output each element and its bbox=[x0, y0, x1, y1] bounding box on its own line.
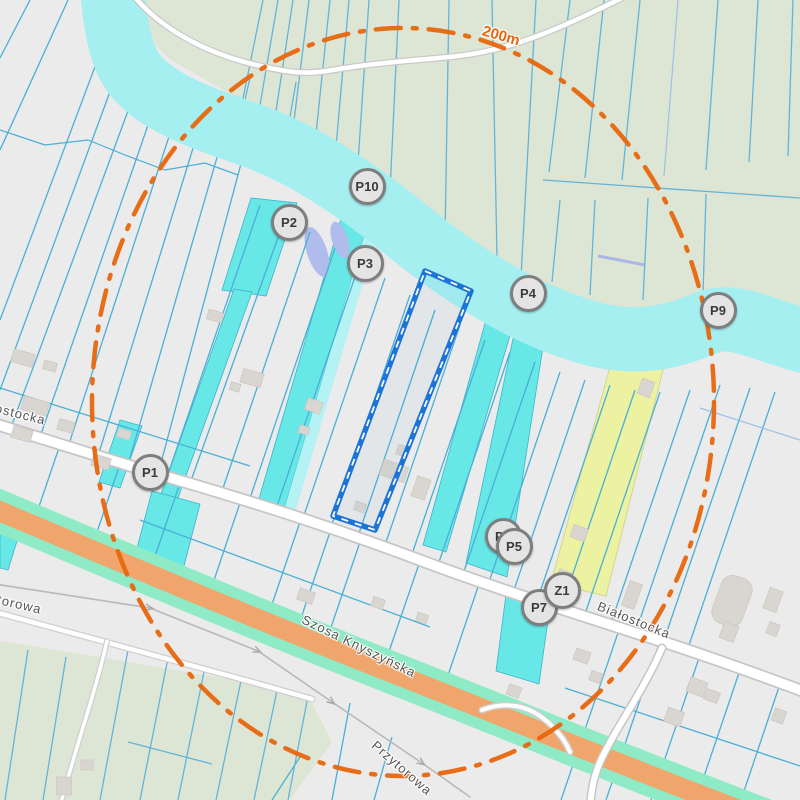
map-canvas[interactable]: BiałostockaSzosa KnyszyńskaBiałostockaPr… bbox=[0, 0, 800, 800]
map-marker-P9[interactable]: P9 bbox=[700, 292, 737, 329]
base-map bbox=[0, 0, 800, 800]
map-marker-P10[interactable]: P10 bbox=[349, 168, 386, 205]
map-marker-P5[interactable]: P5 bbox=[496, 528, 533, 565]
map-marker-P1[interactable]: P1 bbox=[132, 454, 169, 491]
map-marker-Z1[interactable]: Z1 bbox=[544, 572, 581, 609]
map-marker-P4[interactable]: P4 bbox=[510, 275, 547, 312]
map-marker-P3[interactable]: P3 bbox=[347, 245, 384, 282]
map-marker-P2[interactable]: P2 bbox=[271, 204, 308, 241]
